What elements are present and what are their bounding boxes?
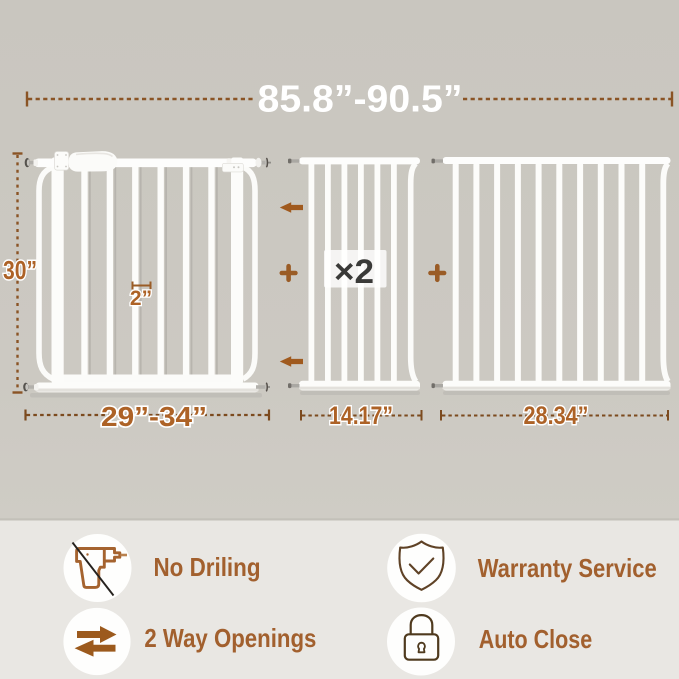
svg-text:×2: ×2 (334, 253, 374, 291)
svg-text:Warranty Service: Warranty Service (478, 553, 657, 583)
svg-text:14.17”: 14.17” (329, 402, 393, 430)
svg-text:2 Way Openings: 2 Way Openings (144, 623, 316, 653)
svg-text:85.8”-90.5”: 85.8”-90.5” (258, 79, 463, 121)
svg-text:2”: 2” (130, 287, 152, 310)
svg-text:28.34”: 28.34” (524, 402, 589, 430)
svg-text:30”: 30” (3, 255, 37, 285)
svg-text:29”-34”: 29”-34” (101, 401, 207, 432)
svg-text:No Driling: No Driling (154, 552, 261, 582)
svg-text:Auto Close: Auto Close (479, 624, 593, 654)
